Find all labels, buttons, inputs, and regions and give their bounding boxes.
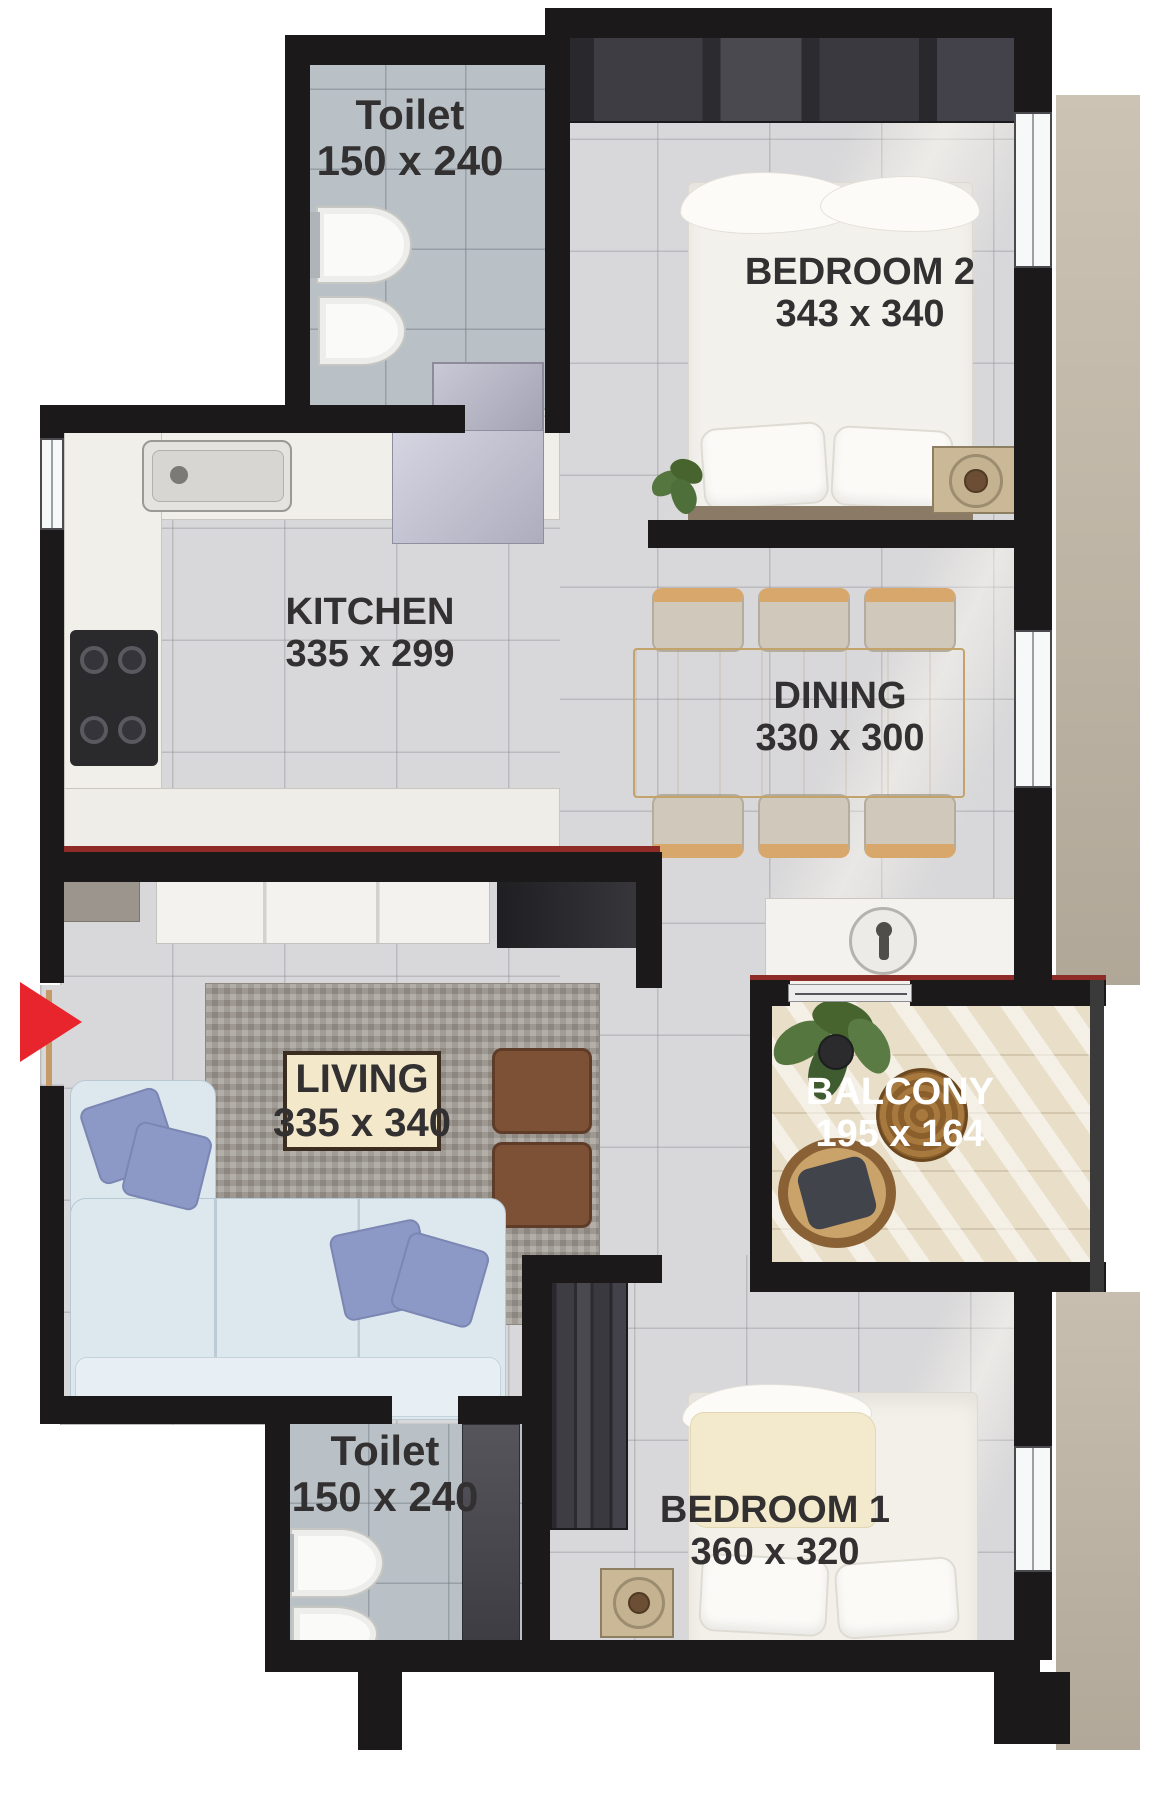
bedside-table xyxy=(600,1568,674,1638)
washbasin-counter xyxy=(765,898,1027,986)
dining-chair xyxy=(652,588,744,652)
room-label-balcony: BALCONY 195 x 164 xyxy=(760,1072,1040,1156)
dining-chair xyxy=(758,794,850,858)
dining-chair xyxy=(864,588,956,652)
wall xyxy=(40,1086,64,1424)
bedside-table xyxy=(932,446,1018,514)
window xyxy=(1014,1446,1052,1572)
plant-pot xyxy=(818,1034,854,1070)
pouf xyxy=(492,1048,592,1134)
wall xyxy=(545,8,1045,38)
room-label-living: LIVING 335 x 340 xyxy=(283,1051,441,1151)
dining-chair xyxy=(652,794,744,858)
wall xyxy=(1014,788,1052,985)
chair-cushion xyxy=(795,1154,879,1232)
room-dims: 335 x 299 xyxy=(285,634,454,676)
wall xyxy=(265,1640,1040,1672)
wall xyxy=(994,1672,1070,1744)
plant xyxy=(648,458,708,516)
burner xyxy=(118,646,146,674)
wall xyxy=(40,1396,392,1424)
exterior-column-upper xyxy=(1056,95,1140,985)
wall xyxy=(545,35,570,433)
kitchen-counter-island xyxy=(64,788,560,852)
sliding-door xyxy=(788,984,912,1002)
table-lamp xyxy=(613,1577,665,1629)
room-label-kitchen: KITCHEN 335 x 299 xyxy=(240,592,500,676)
room-name: Toilet xyxy=(331,1428,440,1474)
door-track xyxy=(795,993,907,995)
room-label-toilet-bottom: Toilet 150 x 240 xyxy=(265,1428,505,1520)
wall xyxy=(910,980,1106,1006)
table-lamp xyxy=(949,454,1003,508)
room-name: Toilet xyxy=(356,92,465,138)
room-dims: 343 x 340 xyxy=(775,294,944,336)
kitchen-sink xyxy=(142,440,292,512)
faucet xyxy=(170,466,188,484)
room-dims: 330 x 300 xyxy=(755,718,924,760)
wall xyxy=(285,35,560,65)
burner xyxy=(80,716,108,744)
wall xyxy=(40,405,465,433)
refrigerator xyxy=(392,430,544,544)
room-name: BEDROOM 1 xyxy=(660,1490,890,1532)
window xyxy=(1014,112,1052,268)
balcony-railing xyxy=(1090,980,1104,1292)
wall xyxy=(636,852,662,988)
wall xyxy=(40,852,660,882)
wall xyxy=(1014,1572,1052,1660)
burner xyxy=(80,646,108,674)
window xyxy=(1014,630,1052,788)
room-dims: 360 x 320 xyxy=(690,1532,859,1574)
room-label-dining: DINING 330 x 300 xyxy=(690,676,990,760)
bidet-fixture xyxy=(318,296,406,366)
wall xyxy=(750,1262,1106,1292)
entry-arrow-icon xyxy=(20,982,82,1062)
room-name: KITCHEN xyxy=(286,592,455,634)
wardrobe xyxy=(565,28,1020,123)
room-dims: 335 x 340 xyxy=(273,1101,451,1145)
wall xyxy=(1014,1292,1052,1446)
wall xyxy=(1014,8,1052,112)
wall xyxy=(522,1255,550,1672)
room-dims: 195 x 164 xyxy=(815,1114,984,1156)
room-dims: 150 x 240 xyxy=(292,1474,479,1520)
window xyxy=(40,438,64,530)
cooktop xyxy=(70,630,158,766)
wall xyxy=(648,520,1040,548)
pouf xyxy=(492,1142,592,1228)
duvet-fold xyxy=(820,176,980,232)
room-dims: 150 x 240 xyxy=(317,138,504,184)
floor-plan: Toilet 150 x 240 BEDROOM 2 343 x 340 KIT… xyxy=(0,0,1166,1800)
wardrobe xyxy=(550,1262,628,1530)
wall xyxy=(358,1672,402,1750)
toilet-fixture xyxy=(316,206,412,284)
wall xyxy=(458,1396,522,1424)
bed-pillow xyxy=(699,421,829,512)
room-label-bedroom-2: BEDROOM 2 343 x 340 xyxy=(700,252,1020,336)
room-label-toilet-top: Toilet 150 x 240 xyxy=(285,92,535,184)
room-label-bedroom-1: BEDROOM 1 360 x 320 xyxy=(620,1490,930,1574)
burner xyxy=(118,716,146,744)
room-name: LIVING xyxy=(295,1057,428,1101)
dining-chair xyxy=(758,588,850,652)
basin-drain-stem xyxy=(879,934,889,960)
room-name: BEDROOM 2 xyxy=(745,252,975,294)
toilet-fixture xyxy=(290,1528,384,1598)
room-name: BALCONY xyxy=(806,1072,994,1114)
dining-chair xyxy=(864,794,956,858)
room-name: DINING xyxy=(774,676,907,718)
washbasin xyxy=(849,907,917,975)
